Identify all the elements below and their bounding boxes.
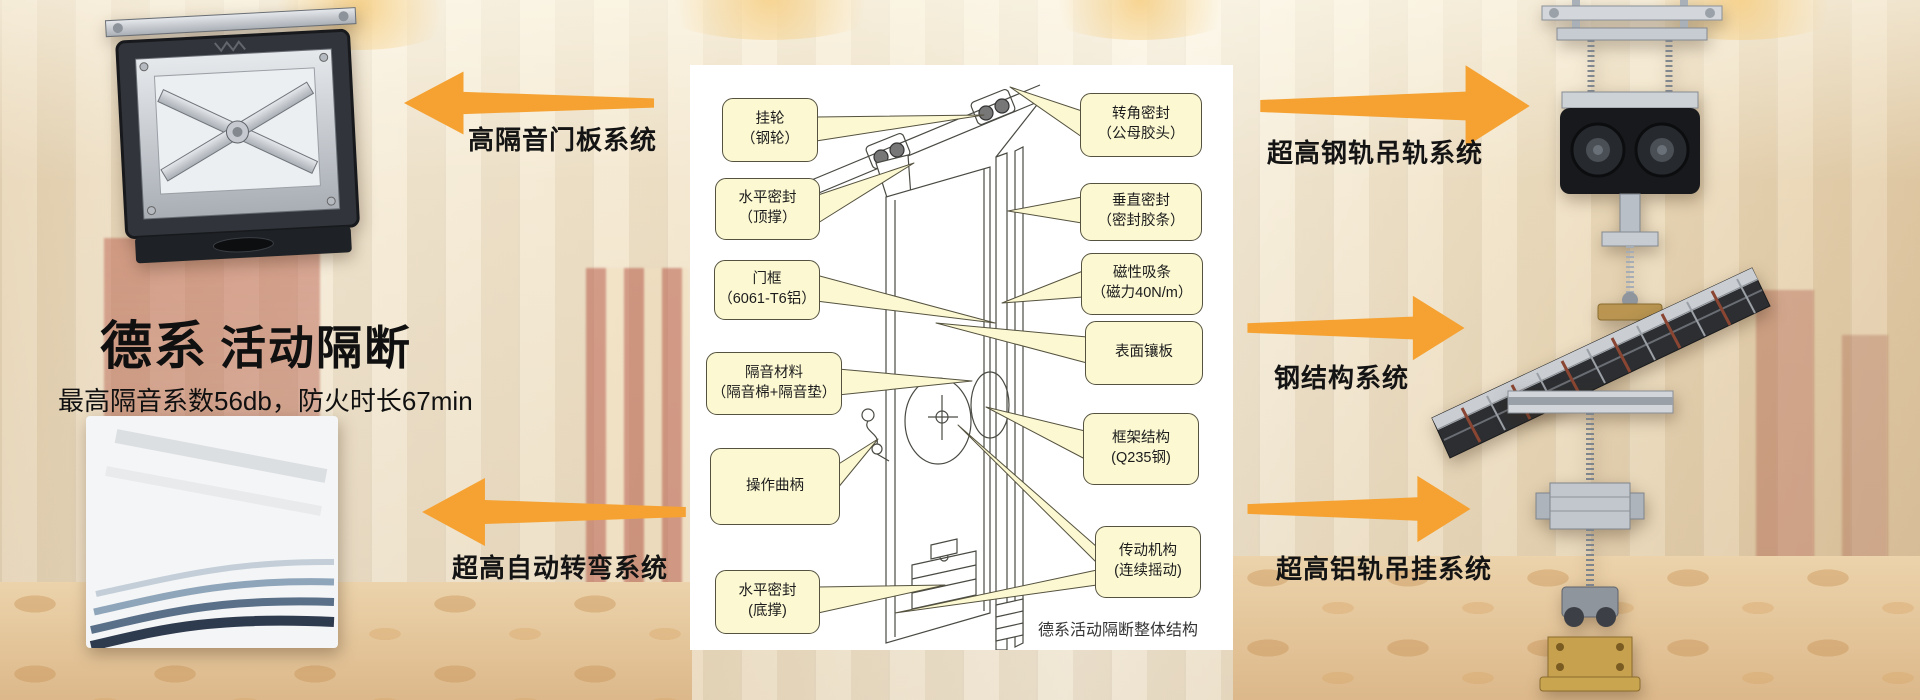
- arrow-right-bottom-shape: [1248, 476, 1471, 542]
- diagram-caption: 德系活动隔断整体结构: [1036, 616, 1200, 640]
- door-panel-mechanism-art: [100, 6, 375, 278]
- callout-door-frame: 门框 （6061-T6铝）: [714, 260, 820, 320]
- callout-line: （密封胶条）: [1098, 212, 1185, 232]
- callout-vertical-seal: 垂直密封 （密封胶条）: [1080, 183, 1202, 241]
- callout-line: 磁性吸条: [1113, 264, 1171, 284]
- callout-line: 水平密封: [739, 189, 797, 209]
- callout-corner-seal: 转角密封 （公母胶头）: [1080, 93, 1202, 157]
- aluminum-rail-hanger-art: [1478, 385, 1703, 700]
- callout-line: 隔音材料: [745, 364, 803, 384]
- product-name: 活动隔断: [220, 312, 412, 378]
- callout-horizontal-seal-top: 水平密封 （顶撑）: [715, 178, 820, 240]
- callout-sound-insulation-material: 隔音材料 （隔音棉+隔音垫）: [706, 352, 842, 415]
- callout-line: 水平密封: [739, 582, 797, 602]
- callout-line: 传动机构: [1119, 542, 1177, 562]
- callout-surface-panel: 表面镶板: [1085, 321, 1203, 385]
- curved-track-photo: [86, 416, 338, 648]
- callout-line: （隔音棉+隔音垫）: [712, 384, 836, 404]
- callout-line: 门框: [753, 270, 782, 290]
- label-aluminum-rail-system: 超高铝轨吊挂系统: [1276, 549, 1492, 586]
- arrow-left-bottom: [418, 472, 690, 552]
- page-title: 德系 活动隔断: [100, 304, 412, 379]
- callout-line: 框架结构: [1112, 429, 1170, 449]
- arrow-left-bottom-shape: [422, 478, 686, 546]
- brand-name: 德系: [100, 304, 208, 379]
- callout-line: 挂轮: [756, 110, 785, 130]
- arrow-right-middle: [1244, 290, 1468, 366]
- label-door-panel-system: 高隔音门板系统: [468, 120, 657, 157]
- door-panel-mechanism-photo: [100, 6, 375, 278]
- callout-line: 表面镶板: [1115, 343, 1173, 363]
- callout-hanging-wheel: 挂轮 （钢轮）: [722, 98, 818, 162]
- callout-line: （顶撑）: [739, 209, 797, 229]
- callout-line: （钢轮）: [741, 130, 799, 150]
- label-steel-rail-system: 超高钢轨吊轨系统: [1267, 133, 1483, 170]
- curved-track-art: [86, 416, 338, 648]
- arrow-right-middle-shape: [1247, 296, 1464, 361]
- callout-line: (Q235钢): [1111, 449, 1171, 469]
- callout-operating-crank: 操作曲柄: [710, 448, 840, 525]
- callout-line: (底撑): [748, 602, 787, 622]
- callout-line: （6061-T6铝）: [718, 290, 816, 310]
- callout-line: （公母胶头）: [1098, 125, 1185, 145]
- callout-transmission-mechanism: 传动机构 (连续摇动): [1095, 526, 1201, 598]
- callout-line: 操作曲柄: [746, 477, 804, 497]
- arrow-right-bottom: [1244, 470, 1474, 548]
- label-auto-turning-system: 超高自动转弯系统: [452, 548, 668, 585]
- callout-frame-structure: 框架结构 (Q235钢): [1083, 413, 1199, 485]
- callout-line: (连续摇动): [1114, 562, 1182, 582]
- aluminum-rail-hanger-photo: [1478, 385, 1703, 700]
- structure-diagram-panel: 挂轮 （钢轮） 水平密封 （顶撑） 门框 （6061-T6铝） 隔音材料 （隔音…: [690, 65, 1233, 650]
- label-steel-structure-system: 钢结构系统: [1274, 358, 1409, 395]
- performance-subtitle: 最高隔音系数56db，防火时长67min: [58, 381, 473, 418]
- callout-line: （磁力40N/m）: [1092, 284, 1193, 304]
- callout-horizontal-seal-bottom: 水平密封 (底撑): [715, 570, 820, 634]
- callout-line: 垂直密封: [1112, 192, 1170, 212]
- callout-magnetic-strip: 磁性吸条 （磁力40N/m）: [1081, 253, 1203, 315]
- callout-line: 转角密封: [1112, 105, 1170, 125]
- slide: 德系 活动隔断 最高隔音系数56db，防火时长67min: [0, 0, 1920, 700]
